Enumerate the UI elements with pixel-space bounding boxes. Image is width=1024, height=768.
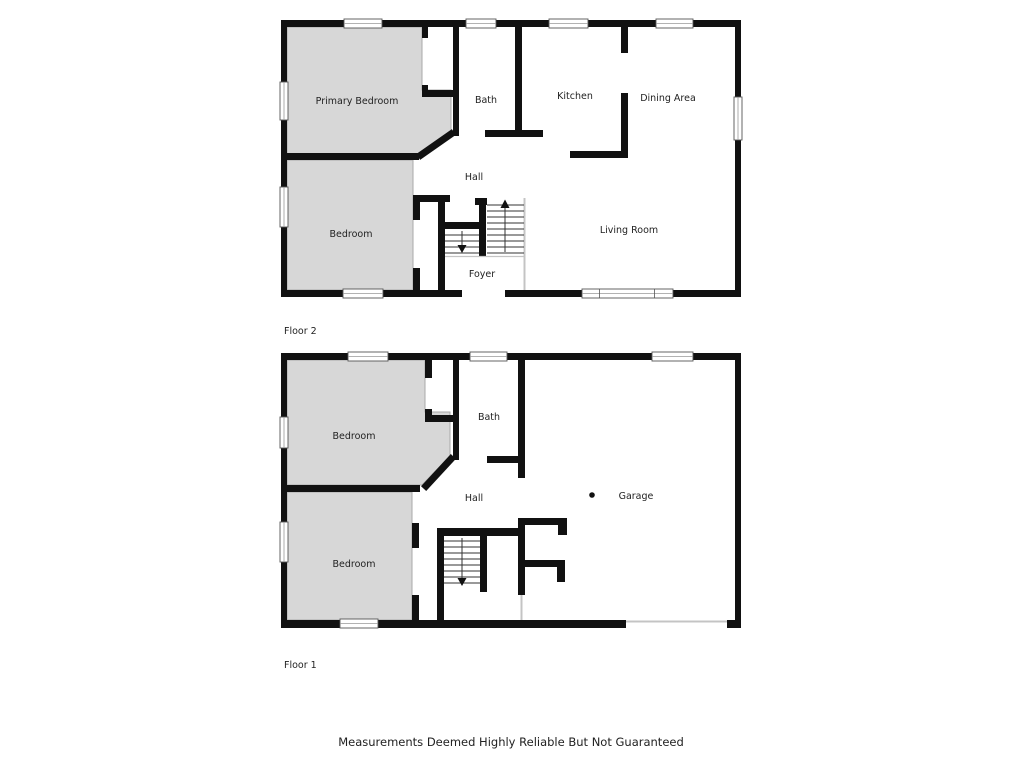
floor1-bedroom-top-label: Bedroom xyxy=(333,431,376,442)
floor1-bedroom-bottom-label: Bedroom xyxy=(333,559,376,570)
floor2-dining-label: Dining Area xyxy=(640,93,696,104)
floor2-bedroom-label: Bedroom xyxy=(330,229,373,240)
floor1-title: Floor 1 xyxy=(284,660,317,671)
floor1-hall-label: Hall xyxy=(465,493,483,504)
stair-up-arrow-icon xyxy=(501,200,510,209)
floor2-plan: Primary Bedroom Bath Kitchen Dining Area… xyxy=(280,19,742,337)
floor1-bedroom-bottom-fill xyxy=(287,492,412,620)
floor1-thin-partitions xyxy=(522,595,728,622)
floor1-bedroom-top-fill xyxy=(287,360,450,485)
disclaimer-text: Measurements Deemed Highly Reliable But … xyxy=(338,735,684,749)
floor1-plan: Bedroom Bath Hall Bedroom Garage Floor 1 xyxy=(280,352,741,671)
floor2-living-label: Living Room xyxy=(600,225,658,236)
floorplan-canvas: Primary Bedroom Bath Kitchen Dining Area… xyxy=(0,0,1024,768)
garage-post-dot xyxy=(589,492,595,498)
floor1-bath-label: Bath xyxy=(478,412,500,423)
floor2-kitchen-label: Kitchen xyxy=(557,91,593,102)
floorplan-page: Primary Bedroom Bath Kitchen Dining Area… xyxy=(0,0,1024,768)
stair-down-arrow-icon xyxy=(458,245,467,253)
floor2-primary-bedroom-label: Primary Bedroom xyxy=(316,96,399,107)
floor2-bedroom-fill xyxy=(287,160,413,290)
floor1-stair-treads xyxy=(444,538,480,583)
stair-down-arrow-icon xyxy=(458,578,467,586)
floor1-staircase xyxy=(444,538,480,586)
floor2-bath-label: Bath xyxy=(475,95,497,106)
floor2-hall-label: Hall xyxy=(465,172,483,183)
floor1-garage-label: Garage xyxy=(619,491,654,502)
floor2-foyer-label: Foyer xyxy=(469,269,495,280)
floor2-title: Floor 2 xyxy=(284,326,317,337)
